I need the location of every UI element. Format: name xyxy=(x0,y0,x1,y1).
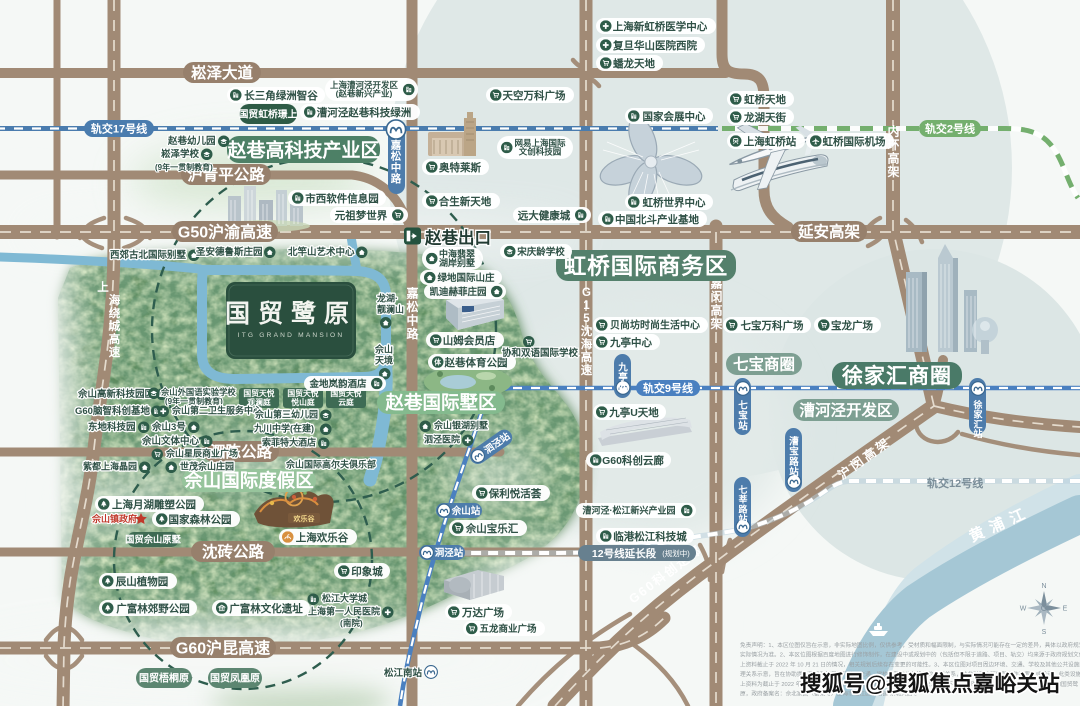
svg-text:(南院): (南院) xyxy=(340,618,363,628)
svg-text:赵巷高科技产业区: 赵巷高科技产业区 xyxy=(226,138,379,161)
svg-text:N: N xyxy=(1041,583,1046,590)
svg-text:崧泽学校: 崧泽学校 xyxy=(161,148,200,160)
svg-text:佘山站: 佘山站 xyxy=(451,505,481,517)
svg-text:崧泽大道: 崧泽大道 xyxy=(191,63,254,82)
svg-text:洞泾站: 洞泾站 xyxy=(434,547,464,559)
svg-text:东地科技园: 东地科技园 xyxy=(88,421,136,433)
svg-text:七莘路站: 七莘路站 xyxy=(738,484,748,524)
svg-text:虹桥天地: 虹桥天地 xyxy=(744,93,786,106)
svg-text:虹桥国际商务区: 虹桥国际商务区 xyxy=(564,253,729,279)
svg-text:G50沪渝高速: G50沪渝高速 xyxy=(178,222,272,241)
svg-text:(赵巷新兴产业): (赵巷新兴产业) xyxy=(336,89,393,99)
svg-text:云庭: 云庭 xyxy=(338,397,354,407)
svg-text:佘山3号: 佘山3号 xyxy=(151,421,186,433)
svg-text:长三角绿洲智谷: 长三角绿洲智谷 xyxy=(244,89,318,102)
svg-text:中国北斗产业基地: 中国北斗产业基地 xyxy=(615,213,699,226)
svg-text:G60科创云廊: G60科创云廊 xyxy=(602,454,664,467)
svg-text:七宝万科广场: 七宝万科广场 xyxy=(741,319,804,332)
svg-text:赵巷体育公园: 赵巷体育公园 xyxy=(444,356,508,369)
svg-text:广富林文化遗址: 广富林文化遗址 xyxy=(229,602,303,615)
svg-text:上海欢乐谷: 上海欢乐谷 xyxy=(296,531,349,544)
svg-text:松江大学城: 松江大学城 xyxy=(322,592,367,603)
svg-text:市西软件信息园: 市西软件信息园 xyxy=(305,192,379,205)
svg-text:延安高架: 延安高架 xyxy=(797,222,861,241)
svg-text:宝龙广场: 宝龙广场 xyxy=(831,319,873,332)
svg-text:漕河泾赵巷科技绿洲: 漕河泾赵巷科技绿洲 xyxy=(317,106,412,119)
svg-text:佘山第二卫生服务中心: 佘山第二卫生服务中心 xyxy=(171,404,262,415)
svg-text:欢乐谷: 欢乐谷 xyxy=(293,514,316,523)
svg-text:国贸佘山原墅: 国贸佘山原墅 xyxy=(125,534,181,545)
svg-text:松江南站: 松江南站 xyxy=(384,667,423,679)
svg-text:北竿山艺术中心: 北竿山艺术中心 xyxy=(288,246,355,258)
svg-text:国贸虹桥璟上: 国贸虹桥璟上 xyxy=(239,108,298,121)
svg-text:赵巷幼儿园: 赵巷幼儿园 xyxy=(167,135,216,147)
svg-text:临港松江科技城: 临港松江科技城 xyxy=(613,530,687,543)
svg-text:赵巷出口: 赵巷出口 xyxy=(424,228,491,248)
svg-text:远大健康城: 远大健康城 xyxy=(518,209,571,222)
svg-text:元祖梦世界: 元祖梦世界 xyxy=(335,209,388,222)
svg-text:佘山: 佘山 xyxy=(374,343,393,354)
svg-text:奥特莱斯: 奥特莱斯 xyxy=(439,161,481,174)
svg-text:国家会展中心: 国家会展中心 xyxy=(643,110,706,123)
svg-text:万达广场: 万达广场 xyxy=(461,606,504,619)
svg-text:徐家汇站: 徐家汇站 xyxy=(972,399,983,439)
svg-text:漕河泾开发区: 漕河泾开发区 xyxy=(799,401,893,420)
svg-text:蟠龙天地: 蟠龙天地 xyxy=(613,57,655,70)
svg-text:12号线延长段: 12号线延长段 xyxy=(592,547,657,560)
svg-text:金地岚韵酒店: 金地岚韵酒店 xyxy=(308,378,367,390)
svg-text:协和双语国际学校: 协和双语国际学校 xyxy=(502,347,579,359)
svg-text:天境: 天境 xyxy=(375,354,393,365)
svg-text:索菲特大酒店: 索菲特大酒店 xyxy=(262,436,316,447)
svg-text:贝尚坊时尚生活中心: 贝尚坊时尚生活中心 xyxy=(610,319,700,332)
svg-text:凯迪赫菲庄园: 凯迪赫菲庄园 xyxy=(429,286,486,298)
svg-text:五龙商业广场: 五龙商业广场 xyxy=(479,623,537,635)
svg-text:国贸天悦: 国贸天悦 xyxy=(243,388,274,398)
svg-text:徐家汇商圈: 徐家汇商圈 xyxy=(841,364,952,388)
svg-text:九亭站: 九亭站 xyxy=(617,361,628,394)
svg-text:佘山国际度假区: 佘山国际度假区 xyxy=(183,470,314,491)
svg-text:上资料截止于 2022 年 10 月 21 日的情况，相关规: 上资料截止于 2022 年 10 月 21 日的情况，相关规划后续存在变更的可能… xyxy=(740,660,1080,668)
svg-text:西郊古北国际别墅: 西郊古北国际别墅 xyxy=(110,249,187,261)
svg-text:轨交9号线: 轨交9号线 xyxy=(643,381,693,395)
svg-text:佘山银湖别墅: 佘山银湖别墅 xyxy=(433,419,488,430)
svg-text:国贸鹭原: 国贸鹭原 xyxy=(225,300,357,328)
svg-text:嘉松中路: 嘉松中路 xyxy=(405,286,419,342)
svg-text:世茂佘山庄园: 世茂佘山庄园 xyxy=(180,460,234,471)
svg-text:九川中学(在建): 九川中学(在建) xyxy=(253,422,314,433)
svg-text:宋庆龄学校: 宋庆龄学校 xyxy=(516,246,565,258)
svg-text:免责声明：1、本区位图仅旨在示意，非实际地图比例，仅供参考，: 免责声明：1、本区位图仅旨在示意，非实际地图比例，仅供参考，受材质和幅面限制，与… xyxy=(740,641,1080,649)
svg-text:轨交12号线: 轨交12号线 xyxy=(927,476,983,490)
svg-text:湖岸别墅: 湖岸别墅 xyxy=(439,257,475,268)
svg-text:(9年一贯制教育): (9年一贯制教育) xyxy=(155,162,213,172)
svg-text:佘山第三幼儿园: 佘山第三幼儿园 xyxy=(254,408,318,419)
svg-text:紫都上海晶园: 紫都上海晶园 xyxy=(83,460,137,471)
svg-text:G60脑智科创基地: G60脑智科创基地 xyxy=(75,405,150,417)
svg-text:泗泾医院: 泗泾医院 xyxy=(424,433,460,444)
svg-text:上海第一人民医院: 上海第一人民医院 xyxy=(308,605,380,616)
svg-text:合生新天地: 合生新天地 xyxy=(438,195,492,208)
svg-text:漕宝路站: 漕宝路站 xyxy=(789,435,799,478)
svg-text:绿地国际山庄: 绿地国际山庄 xyxy=(437,272,495,284)
svg-text:搜狐号@搜狐焦点嘉峪关站: 搜狐号@搜狐焦点嘉峪关站 xyxy=(800,671,1060,696)
svg-text:轨交2号线: 轨交2号线 xyxy=(925,122,975,136)
svg-text:实际情况为准。2、本区位图根据百度地图进行修饰制作，在建设中: 实际情况为准。2、本区位图根据百度地图进行修饰制作，在建设中或规划中的（包括但不… xyxy=(740,651,1080,659)
svg-text:佘山高新科技园区: 佘山高新科技园区 xyxy=(77,388,155,400)
svg-text:九亭中心: 九亭中心 xyxy=(609,336,652,349)
svg-text:国家森林公园: 国家森林公园 xyxy=(169,513,232,526)
svg-text:保利悦活荟: 保利悦活荟 xyxy=(488,487,542,500)
svg-text:印象城: 印象城 xyxy=(351,565,383,578)
svg-text:七宝站: 七宝站 xyxy=(738,399,748,432)
svg-text:G60沪昆高速: G60沪昆高速 xyxy=(176,638,270,657)
svg-text:佘山宝乐汇: 佘山宝乐汇 xyxy=(465,522,519,535)
svg-text:国贸凤凰原: 国贸凤凰原 xyxy=(210,672,260,685)
svg-text:嘉闵高架: 嘉闵高架 xyxy=(709,276,722,332)
svg-text:E: E xyxy=(1063,606,1068,613)
svg-text:嘉松中路: 嘉松中路 xyxy=(390,138,402,185)
svg-text:山姆会员店: 山姆会员店 xyxy=(443,334,496,347)
svg-text:W: W xyxy=(1020,606,1027,613)
svg-text:内环高架: 内环高架 xyxy=(886,124,899,180)
svg-text:沈砖公路: 沈砖公路 xyxy=(202,542,265,561)
svg-text:ITG GRAND MANSION: ITG GRAND MANSION xyxy=(238,332,345,339)
svg-text:靓澜山: 靓澜山 xyxy=(377,303,404,314)
svg-text:上海虹桥站: 上海虹桥站 xyxy=(744,135,797,148)
svg-text:悦山庭: 悦山庭 xyxy=(291,397,315,407)
svg-text:辰山植物园: 辰山植物园 xyxy=(116,575,169,588)
svg-text:上海新虹桥医学中心: 上海新虹桥医学中心 xyxy=(613,20,708,33)
svg-text:轨交17号线: 轨交17号线 xyxy=(91,122,147,136)
svg-text:虹桥世界中心: 虹桥世界中心 xyxy=(643,196,706,209)
svg-text:国贸梧桐原: 国贸梧桐原 xyxy=(139,672,189,685)
svg-text:佘山文体中心: 佘山文体中心 xyxy=(141,435,200,447)
svg-text:龙湖·: 龙湖· xyxy=(376,292,398,303)
svg-text:文创科技园: 文创科技园 xyxy=(519,147,562,157)
svg-text:佘山国际高尔夫俱乐部: 佘山国际高尔夫俱乐部 xyxy=(285,458,376,469)
svg-text:佘山镇政府: 佘山镇政府 xyxy=(91,513,137,524)
svg-text:九亭U天地: 九亭U天地 xyxy=(608,406,659,419)
svg-text:七宝商圈: 七宝商圈 xyxy=(733,355,795,374)
svg-text:S: S xyxy=(1042,629,1047,636)
svg-text:上海月湖雕塑公园: 上海月湖雕塑公园 xyxy=(112,498,196,511)
svg-text:虹桥国际机场: 虹桥国际机场 xyxy=(823,135,886,148)
svg-text:赵巷国际墅区: 赵巷国际墅区 xyxy=(384,392,496,413)
svg-text:广富林郊野公园: 广富林郊野公园 xyxy=(116,602,190,615)
svg-text:天空万科广场: 天空万科广场 xyxy=(503,89,566,102)
svg-text:漕河泾·松江新兴产业园: 漕河泾·松江新兴产业园 xyxy=(583,505,676,516)
svg-text:圣安德鲁斯庄园: 圣安德鲁斯庄园 xyxy=(195,246,263,258)
svg-text:佘山星辰商业广场: 佘山星辰商业广场 xyxy=(165,447,238,458)
svg-text:复旦华山医院西院: 复旦华山医院西院 xyxy=(612,39,697,52)
svg-text:(规划中): (规划中) xyxy=(662,548,690,558)
svg-text:佘山外国语实验学校: 佘山外国语实验学校 xyxy=(160,387,236,397)
svg-text:龙湖天街: 龙湖天街 xyxy=(743,111,786,124)
